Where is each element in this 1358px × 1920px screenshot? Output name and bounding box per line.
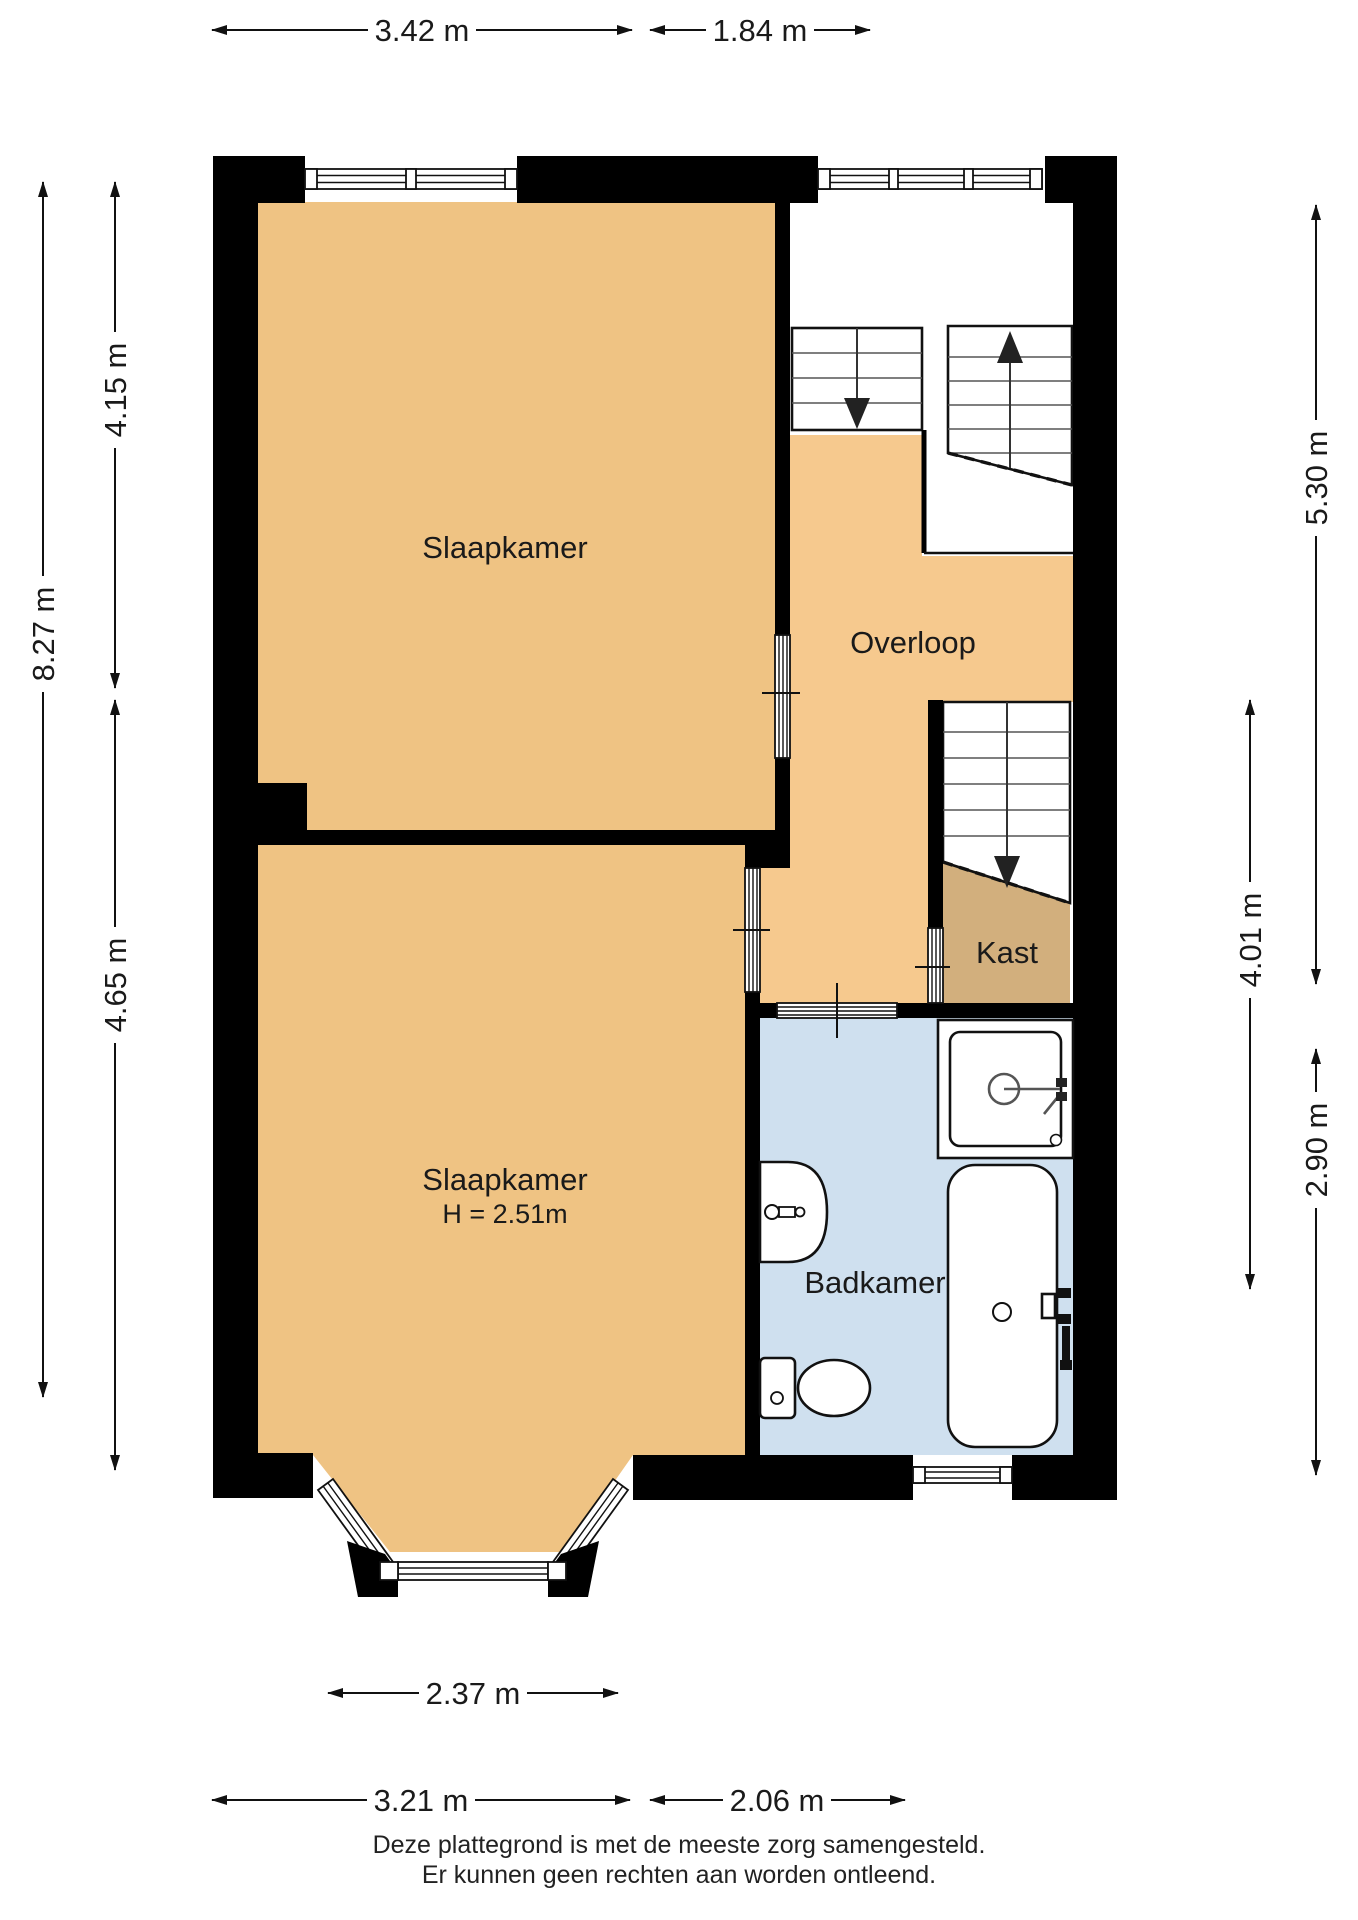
dim-bay-label: 2.37 m <box>426 1676 521 1711</box>
wall-bedroom2-right <box>745 992 760 1455</box>
dimension-right-lower: 2.90 m <box>1299 1049 1335 1475</box>
wall-bedroom1-right-upper <box>775 202 790 635</box>
wall-between-bedrooms <box>258 830 790 845</box>
window-top-left <box>305 169 517 189</box>
dimension-top-2: 1.84 m <box>650 12 870 48</box>
staircase-up <box>948 326 1072 485</box>
dim-right-lower-label: 2.90 m <box>1299 1103 1334 1198</box>
footer-line-1: Deze plattegrond is met de meeste zorg s… <box>373 1831 986 1859</box>
dimension-bottom-left: 3.21 m <box>212 1782 630 1818</box>
dim-top-2-label: 1.84 m <box>713 13 808 48</box>
wall-bottom-left-corner <box>213 1453 313 1498</box>
wall-closet-left <box>928 700 943 928</box>
floorplan-drawing: Slaapkamer Slaapkamer H = 2.51m Overloop… <box>0 0 1358 1920</box>
wall-bottom <box>633 1455 913 1500</box>
wall-bedroom1-right-lower <box>775 758 790 830</box>
bathtub-drain <box>993 1303 1011 1321</box>
dimension-left-lower: 4.65 m <box>98 700 134 1470</box>
wall-bathroom-top-left <box>745 1003 777 1018</box>
dim-left-upper-label: 4.15 m <box>98 343 133 438</box>
dimension-bay: 2.37 m <box>328 1675 618 1711</box>
wall-top-middle <box>517 156 818 203</box>
window-top-right <box>818 169 1042 189</box>
dim-right-upper-label: 5.30 m <box>1299 431 1334 526</box>
staircase-down-top <box>792 328 922 430</box>
shower-drain <box>1051 1135 1062 1146</box>
closet-label: Kast <box>976 935 1038 970</box>
dim-bottom-right-label: 2.06 m <box>730 1783 825 1818</box>
sink <box>760 1162 827 1262</box>
toilet <box>760 1358 870 1418</box>
dim-bottom-left-label: 3.21 m <box>374 1783 469 1818</box>
bedroom-2-height-note: H = 2.51m <box>442 1199 567 1229</box>
footer-line-2: Er kunnen geen rechten aan worden ontlee… <box>422 1861 936 1889</box>
wall-bathroom-top-right <box>897 1003 1073 1018</box>
dimension-top-1: 3.42 m <box>212 12 632 48</box>
wall-top-left <box>213 156 305 203</box>
dimension-right-inner: 4.01 m <box>1233 700 1269 1289</box>
dim-right-inner-label: 4.01 m <box>1233 893 1268 988</box>
wall-corner-junction <box>745 845 790 868</box>
bedroom-1-floor <box>258 202 775 830</box>
bedroom-1-label: Slaapkamer <box>422 530 587 565</box>
dimension-bottom-right: 2.06 m <box>650 1782 905 1818</box>
dim-left-lower-label: 4.65 m <box>98 938 133 1033</box>
bedroom-2-label: Slaapkamer <box>422 1162 587 1197</box>
floorplan-page: Slaapkamer Slaapkamer H = 2.51m Overloop… <box>0 0 1358 1920</box>
bathtub <box>948 1165 1072 1447</box>
footer-disclaimer: Deze plattegrond is met de meeste zorg s… <box>373 1831 986 1889</box>
dimension-left-outer: 8.27 m <box>26 182 62 1397</box>
wall-right <box>1073 156 1117 1500</box>
wall-notch-chimney <box>258 783 307 830</box>
dim-left-outer-label: 8.27 m <box>26 587 61 682</box>
shower <box>938 1020 1073 1158</box>
dim-top-1-label: 3.42 m <box>375 13 470 48</box>
bathroom-label: Badkamer <box>804 1265 945 1300</box>
dimension-left-upper: 4.15 m <box>98 182 134 688</box>
wall-left <box>213 156 258 1498</box>
dimension-right-upper: 5.30 m <box>1299 205 1335 984</box>
hall-label: Overloop <box>850 625 976 660</box>
window-bathroom-bottom <box>913 1455 1012 1500</box>
wall-bottom-right-corner <box>1012 1455 1117 1500</box>
